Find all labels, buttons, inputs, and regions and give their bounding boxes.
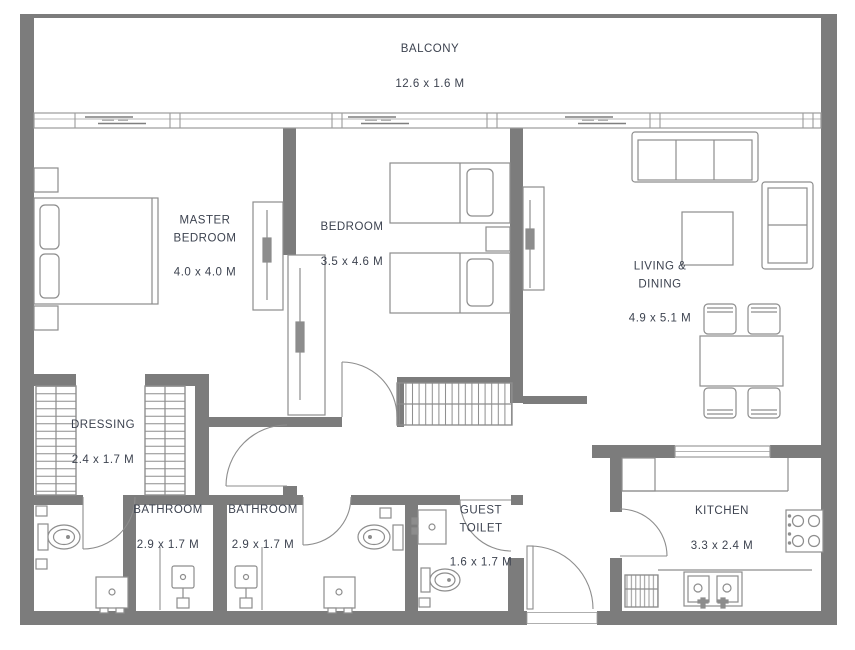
door-bathroom-2: [303, 497, 351, 545]
dressing-furniture: [36, 386, 185, 495]
nightstand-icon: [486, 227, 510, 251]
toilet-icon: [36, 506, 80, 569]
closet-hatch-icon: [397, 383, 512, 425]
door-bedroom: [342, 362, 397, 417]
wall-bath-top-d: [511, 495, 523, 505]
wall-left: [20, 14, 34, 625]
wall-living-stub: [523, 396, 587, 404]
wall-master-south-a: [34, 374, 76, 386]
toilet-icon: [358, 508, 403, 550]
entrance-threshold: [527, 613, 597, 624]
dining-table-icon: [700, 336, 783, 386]
sofa-icon: [632, 132, 758, 182]
wall-kitchen-top-a: [592, 445, 675, 458]
dining-chair-icon: [704, 304, 736, 334]
sprayer-icon: [36, 559, 47, 569]
wall-bath-top-a: [34, 495, 83, 505]
wall-wardrobe-top: [397, 377, 512, 383]
wall-stub-master-door: [283, 486, 297, 495]
window-strip: [34, 113, 821, 128]
floor-plan-drawing: [0, 0, 855, 650]
shower-icon: [172, 566, 194, 608]
wardrobe-hatch-icon: [36, 386, 76, 495]
cabinet-icon: [622, 458, 655, 491]
wall-dressing-east: [195, 386, 209, 497]
shower-icon: [235, 566, 257, 608]
dining-chair-icon: [704, 388, 736, 418]
pillow-icon: [467, 169, 493, 216]
tv-unit-icon: [523, 187, 544, 290]
kitchen-fixtures: [622, 446, 823, 608]
paper-holder-icon: [380, 508, 391, 518]
single-bed-icon: [390, 253, 510, 313]
pillow-icon: [40, 205, 59, 249]
wall-bottom-right: [597, 611, 837, 625]
floor-plan: BALCONY 12.6 x 1.6 M MASTER BEDROOM 4.0 …: [0, 0, 855, 650]
loveseat-icon: [762, 182, 813, 269]
wall-living-west: [510, 128, 523, 403]
nightstand-icon: [34, 168, 58, 192]
wall-master-bedroom-divider: [283, 128, 296, 255]
bedroom-furniture: [288, 163, 512, 425]
master-bedroom-furniture: [34, 168, 283, 330]
wall-bottom-left: [20, 611, 527, 625]
door-master-bedroom: [226, 425, 287, 486]
wall-kitchen-west-upper: [610, 458, 622, 512]
dining-chair-icon: [748, 388, 780, 418]
stove-icon: [786, 510, 823, 552]
sink-icon: [324, 577, 355, 613]
wall-kitchen-top-b: [770, 445, 823, 458]
wall-kitchen-west-lower: [610, 558, 622, 611]
door-kitchen: [620, 509, 667, 556]
pillow-icon: [467, 259, 493, 306]
window-band: [34, 113, 821, 128]
pillow-icon: [40, 254, 59, 298]
living-dining-furniture: [523, 132, 813, 418]
paper-holder-icon: [36, 506, 47, 516]
dining-chair-icon: [748, 304, 780, 334]
single-bed-icon: [390, 163, 510, 223]
door-guest-toilet: [460, 500, 511, 551]
wardrobe-hatch-icon: [145, 386, 185, 495]
wall-guest-toilet-west: [405, 495, 418, 611]
appliance-hatch-icon: [625, 575, 658, 607]
bathroom-2-fixtures: [235, 508, 403, 613]
toilet-icon: [419, 568, 460, 607]
coffee-table-icon: [682, 212, 733, 265]
wall-guest-toilet-east: [508, 558, 524, 611]
kitchen-sink-icon: [684, 572, 742, 608]
guest-toilet-fixtures: [412, 510, 460, 607]
nightstand-icon: [34, 306, 58, 330]
wall-bedroom-south: [283, 417, 342, 427]
wall-master-south-b: [145, 374, 209, 386]
wardrobe-icon: [253, 202, 283, 310]
balcony-rail: [34, 14, 821, 18]
wardrobe-icon: [288, 255, 325, 415]
sink-icon: [96, 577, 128, 613]
bathroom-1-fixtures: [36, 506, 194, 613]
wall-bathrooms-divider: [213, 495, 227, 611]
door-entrance: [527, 546, 597, 624]
paper-holder-icon: [419, 598, 430, 607]
